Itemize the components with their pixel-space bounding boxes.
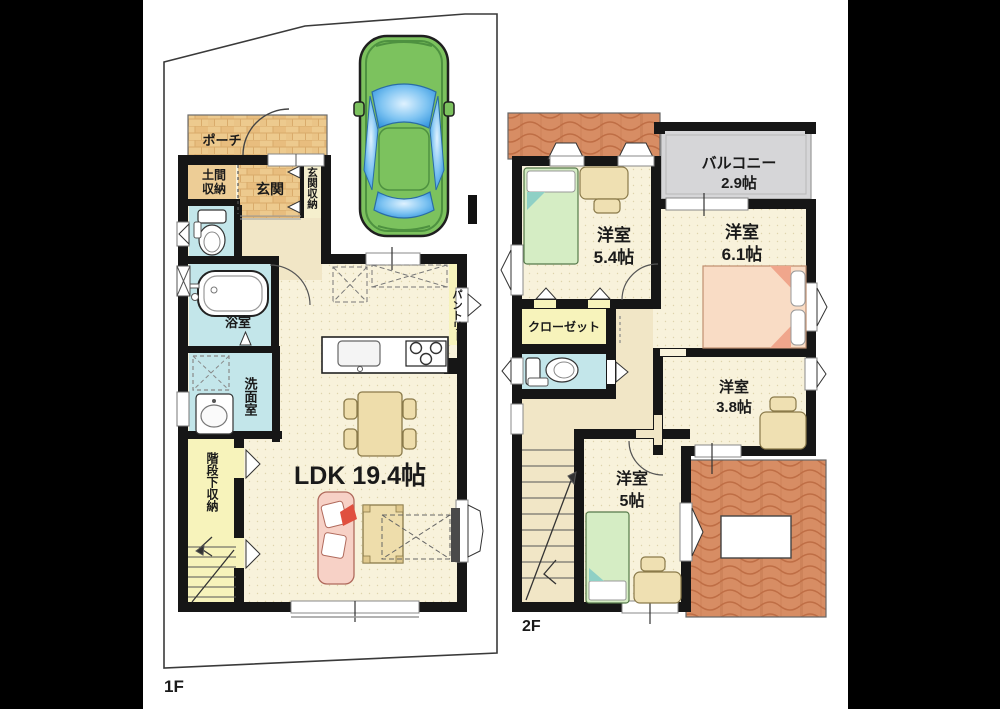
- washroom-label: 洗面室: [243, 376, 258, 417]
- tv: [451, 508, 460, 562]
- kitchen-sink: [338, 341, 380, 366]
- genkan-storage-label: 玄関収納: [306, 166, 318, 210]
- left-black-border: [0, 0, 143, 709]
- room54-label-1: 洋室: [597, 225, 631, 245]
- genkan-label: 玄関: [256, 181, 284, 197]
- bed-room54: [524, 168, 578, 264]
- house-2f: バルコニー 2.9帖 洋室 5.4帖 洋室 6.1帖 クローゼット 洋室 3.8…: [501, 113, 827, 624]
- room54-label-2: 5.4帖: [594, 247, 635, 267]
- washbasin: [196, 394, 233, 434]
- stairs-2f-floor: [520, 433, 576, 605]
- doma-label-1: 土間: [202, 167, 226, 182]
- ldk-label: LDK 19.4帖: [294, 462, 426, 490]
- bed-room5: [586, 512, 629, 603]
- bed-room61: [703, 266, 806, 348]
- doma-label-2: 収納: [202, 181, 226, 196]
- stove-burners: [406, 341, 446, 366]
- room61-label-1: 洋室: [725, 222, 759, 242]
- right-black-border: [848, 0, 1000, 709]
- car-top-view-icon: [354, 36, 454, 236]
- kitchen-counter: [322, 337, 448, 373]
- pantry-label: パントリー: [451, 289, 463, 342]
- skylight: [721, 516, 791, 558]
- floor-plan-canvas: ポーチ: [0, 0, 1000, 709]
- floor-plan-image: ポーチ: [0, 0, 1000, 709]
- room61-label-2: 6.1帖: [722, 244, 763, 264]
- room38-label-2: 3.8帖: [716, 398, 752, 416]
- room38-label-1: 洋室: [719, 378, 749, 396]
- room5-label-1: 洋室: [616, 469, 648, 488]
- floor-tag-1f: 1F: [164, 677, 184, 696]
- bath-label: 浴室: [225, 315, 251, 330]
- hall-2f-lower: [520, 397, 653, 433]
- living-table: [363, 505, 403, 563]
- balcony-label-1: バルコニー: [702, 155, 777, 172]
- porch-area: ポーチ: [188, 109, 327, 157]
- porch-label: ポーチ: [202, 133, 241, 148]
- floor-tag-2f: 2F: [522, 618, 541, 635]
- stair-storage-label: 階段下収納: [205, 451, 219, 513]
- boundary-post: [468, 195, 477, 224]
- sofa: [318, 492, 357, 584]
- balcony-label-2: 2.9帖: [721, 174, 757, 192]
- closet-label: クローゼット: [528, 319, 600, 334]
- room5-label-2: 5帖: [620, 491, 645, 510]
